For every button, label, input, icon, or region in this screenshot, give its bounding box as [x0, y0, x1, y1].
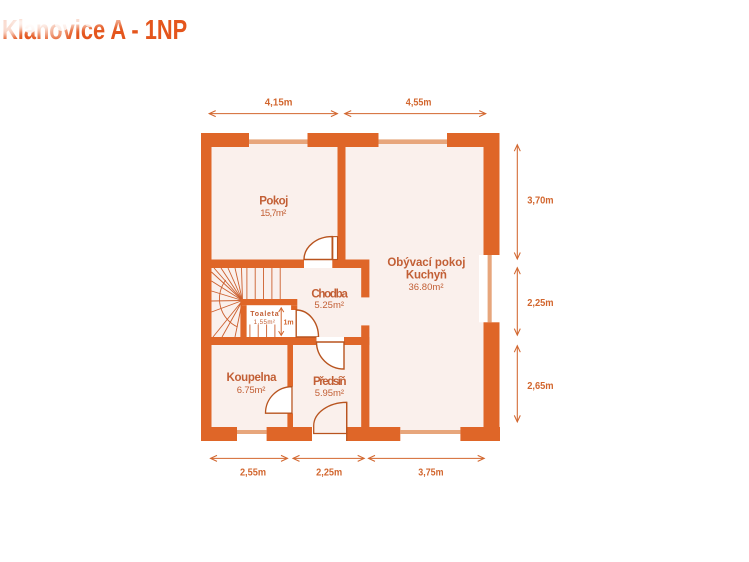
svg-text:36.80m²: 36.80m²	[409, 282, 444, 293]
svg-text:2,65m: 2,65m	[527, 381, 553, 392]
svg-text:Pokoj: Pokoj	[259, 196, 288, 208]
svg-text:Toaleta: Toaleta	[250, 311, 278, 318]
svg-text:Předsíň: Předsíň	[313, 376, 347, 388]
svg-text:2,25m: 2,25m	[316, 468, 342, 479]
svg-text:1m: 1m	[284, 320, 294, 327]
svg-text:2,25m: 2,25m	[527, 298, 553, 309]
svg-text:Koupelna: Koupelna	[227, 372, 278, 384]
svg-text:2,55m: 2,55m	[240, 468, 266, 479]
svg-text:15,7m²: 15,7m²	[260, 208, 286, 219]
svg-text:3,70m: 3,70m	[527, 195, 553, 206]
svg-text:4,15m: 4,15m	[265, 98, 293, 109]
svg-text:5.25m²: 5.25m²	[314, 300, 344, 311]
svg-text:1,55m²: 1,55m²	[254, 319, 275, 326]
svg-text:Obývací pokoj: Obývací pokoj	[387, 257, 465, 269]
svg-text:5.95m²: 5.95m²	[315, 388, 344, 399]
svg-text:Chodba: Chodba	[311, 289, 348, 301]
svg-text:Kuchyň: Kuchyň	[406, 270, 447, 282]
svg-text:4,55m: 4,55m	[406, 98, 432, 109]
svg-text:6.75m²: 6.75m²	[237, 385, 266, 396]
svg-text:3,75m: 3,75m	[418, 468, 443, 479]
